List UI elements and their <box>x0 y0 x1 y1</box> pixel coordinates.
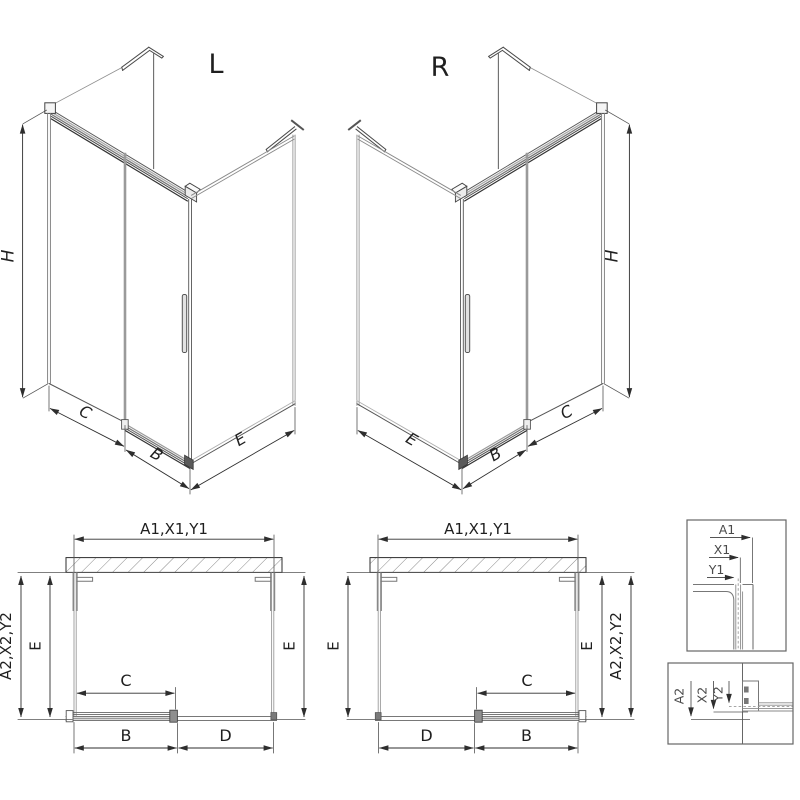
detail-view-bottom: A2 X2 Y2 <box>668 663 793 744</box>
plan-right-dim-b: B <box>521 726 532 745</box>
plan-right-dim-e-right: E <box>578 641 596 650</box>
dim-label-c-right: C <box>557 401 576 423</box>
plan-left-dim-b: B <box>121 726 132 745</box>
detail-view-top: A1 X1 Y1 <box>687 520 786 651</box>
iso-right-title: R <box>431 52 450 83</box>
dim-label-c-left: C <box>76 401 95 423</box>
plan-view-left: A1,X1,Y1 A2,X2,Y2 E E C B D <box>0 520 305 753</box>
plan-right-dim-c: C <box>521 671 532 690</box>
technical-drawing-sheet: L H C B E R H C B E A1,X1,Y1 A2,X2,Y2 E … <box>0 0 800 800</box>
plan-left-dim-a2x2y2: A2,X2,Y2 <box>0 612 15 680</box>
detail-top-dim-y1: Y1 <box>708 562 725 577</box>
plan-right-dim-a2x2y2: A2,X2,Y2 <box>607 612 625 680</box>
detail-bottom-dim-x2: X2 <box>695 687 710 704</box>
dim-label-b-left: B <box>147 443 166 465</box>
plan-right-dim-e-left: E <box>325 641 343 650</box>
iso-left-title: L <box>208 49 223 80</box>
dim-label-b-right: B <box>486 443 505 465</box>
dim-label-h-right: H <box>603 249 623 262</box>
plan-left-dim-c: C <box>120 671 131 690</box>
plan-left-dim-e-left: E <box>27 641 45 650</box>
plan-left-dim-e-right: E <box>281 641 299 650</box>
plan-right-dim-a1x1y1: A1,X1,Y1 <box>444 520 512 538</box>
iso-view-left: L H C B E <box>0 47 303 494</box>
plan-left-dim-a1x1y1: A1,X1,Y1 <box>140 520 208 538</box>
plan-left-dim-d: D <box>219 726 231 745</box>
shower-enclosure-drawing: L H C B E R H C B E A1,X1,Y1 A2,X2,Y2 E … <box>0 0 800 800</box>
detail-bottom-dim-y2: Y2 <box>711 686 726 703</box>
wall-hatch-left <box>66 558 282 573</box>
wall-hatch-right <box>370 558 586 573</box>
plan-right-dim-d: D <box>420 726 432 745</box>
plan-view-right: A1,X1,Y1 E E A2,X2,Y2 C D B <box>325 520 635 753</box>
detail-top-dim-a1: A1 <box>719 522 736 537</box>
iso-view-right: R H C B E <box>349 47 629 494</box>
detail-bottom-dim-a2: A2 <box>672 688 687 705</box>
detail-top-dim-x1: X1 <box>714 542 731 557</box>
dim-label-h-left: H <box>0 249 19 262</box>
